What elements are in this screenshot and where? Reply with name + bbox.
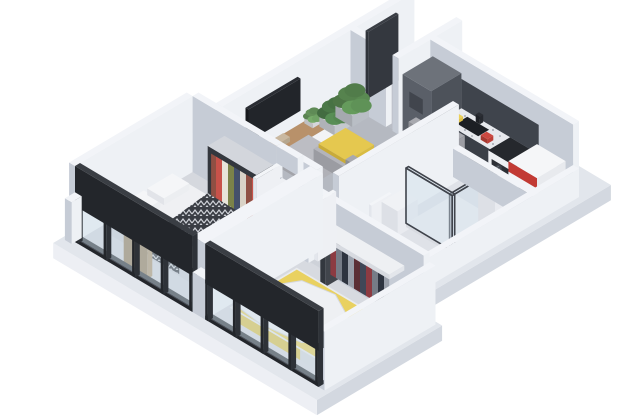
window-pier-southwest (65, 192, 82, 244)
floorplan-render (0, 0, 640, 415)
apartment-3d-scene (0, 0, 640, 415)
